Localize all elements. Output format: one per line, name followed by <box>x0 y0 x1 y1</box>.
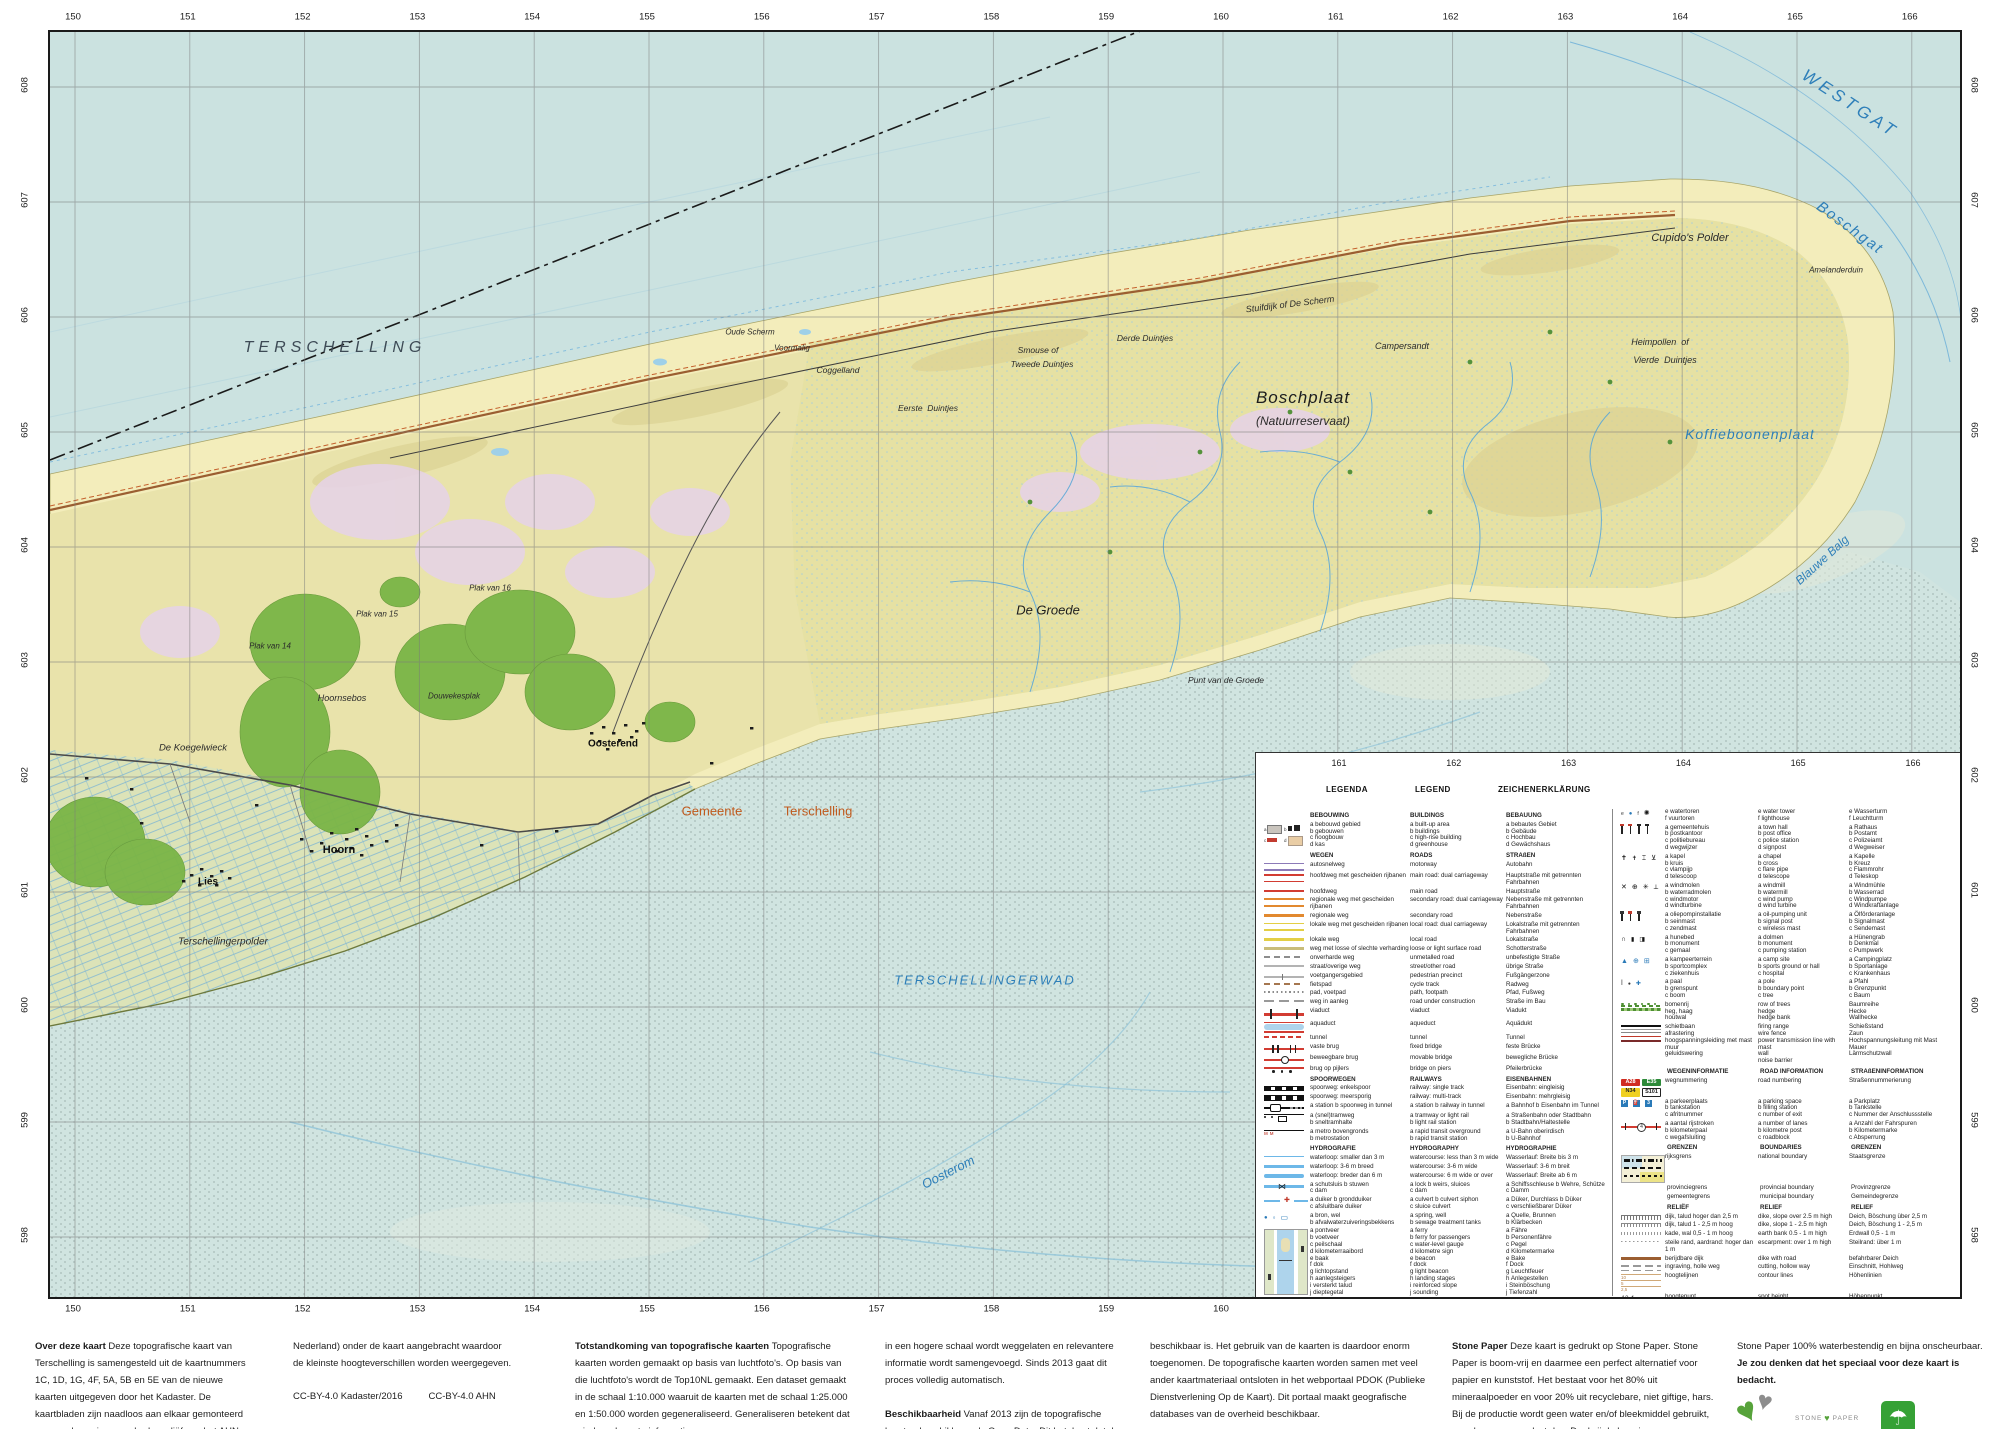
legend-text-en: a spring, well b sewage treatment tanks <box>1410 1213 1506 1227</box>
legend-row: 4a aantal rijstroken b kilometerpaal c w… <box>1621 1121 1957 1141</box>
legend-text-en: secondary road: dual carriageway <box>1410 897 1506 904</box>
legend-text-nl: a parkeerplaats b tankstation c afritnum… <box>1665 1099 1758 1119</box>
axis-top-label: 151 <box>180 12 196 23</box>
legend-text-nl: e watertoren f vuurtoren <box>1665 809 1758 823</box>
legend-symbol-rel4 <box>1621 1240 1665 1242</box>
legend-text-de: Pfeilerbrücke <box>1506 1066 1612 1073</box>
legend-text-nl: berijdbare dijk <box>1665 1256 1758 1263</box>
legend-row: ǀ●✚a paal b grenspunt c booma pole b bou… <box>1621 979 1957 999</box>
footer-paragraph: Stone Paper Deze kaart is gedrukt op Sto… <box>1452 1338 1714 1429</box>
legend-row: bomenrij heg, haag houtwalrow of trees h… <box>1621 1002 1957 1022</box>
legend-row: hoofdweg met gescheiden rijbanenmain roa… <box>1264 873 1612 887</box>
legend-text-en: local road <box>1410 937 1506 944</box>
footer-paragraph: Beschikbaarheid Vanaf 2013 zijn de topog… <box>885 1406 1131 1429</box>
legend-text-nl: regionale weg met gescheiden rijbanen <box>1310 897 1410 911</box>
legend-text-de: Autobahn <box>1506 862 1612 869</box>
legend-symbol-roadnum: A28E35N34S101 <box>1621 1078 1665 1097</box>
legend-text-de: e Wasserturm f Leuchtturm <box>1849 809 1957 823</box>
legend-row: waterloop: 3-6 m breedwatercourse: 3-6 m… <box>1264 1164 1612 1171</box>
axis-left-label: 608 <box>20 77 31 93</box>
legend-row: steile rand, aardrand: hoger dan 1 mesca… <box>1621 1240 1957 1254</box>
legend-symbol-dolmen: ∩▮◨ <box>1621 935 1665 944</box>
legend-text-de: Hauptstraße mit getrennten Fahrbahnen <box>1506 873 1612 887</box>
legend-symbol-wl1 <box>1264 1155 1310 1157</box>
legend-text-en: row of trees hedge hedge bank <box>1758 1002 1849 1022</box>
legend-text-nl: waterloop: smaller dan 3 m <box>1310 1155 1410 1162</box>
legend-row: beweegbare brugmovable bridgebewegliche … <box>1264 1055 1612 1064</box>
legend-symbol-spring: ●◦▭ <box>1264 1213 1310 1222</box>
legend-row: spoorweg: enkelspoorrailway: single trac… <box>1264 1085 1612 1092</box>
axis-bottom-label: 154 <box>524 1304 540 1315</box>
legend-text-de: Wasserlauf: 3-6 m breit <box>1506 1164 1612 1171</box>
legend-text-nl: a duiker b grondduiker c afsluitbare dui… <box>1310 1197 1410 1211</box>
legend-text-de: Nebenstraße mit getrennten Fahrbahnen <box>1506 897 1612 911</box>
axis-top-label: 163 <box>1557 12 1573 23</box>
legend-section-en: RELIEF <box>1760 1205 1851 1212</box>
legend-text-nl: a windmolen b waterradmolen c windmotor … <box>1665 883 1758 910</box>
legend-text-nl: pad, voetpad <box>1310 990 1410 997</box>
axis-bottom-label: 153 <box>409 1304 425 1315</box>
legend-text-en: firing range wire fence power transmissi… <box>1758 1024 1849 1065</box>
footer-column: beschikbaar is. Het gebruik van de kaart… <box>1150 1338 1442 1423</box>
legend-row: weg met losse of slechte verhardingloose… <box>1264 946 1612 953</box>
footer-column: Stone Paper 100% waterbestendig en bijna… <box>1737 1338 1987 1429</box>
legend-symbol-fences <box>1621 1024 1665 1042</box>
legend-row: regionale wegsecondary roadNebenstraße <box>1264 913 1612 920</box>
legend-text-en: cutting, hollow way <box>1758 1264 1849 1271</box>
legend-text-de: Erdwall 0,5 - 1 m <box>1849 1231 1957 1238</box>
legend-header-nl: LEGENDA <box>1326 785 1368 794</box>
legend-text-en: secondary road <box>1410 913 1506 920</box>
legend-text-de: Höhenpunkt <box>1849 1294 1957 1298</box>
legend-symbol-rdash <box>1264 982 1310 985</box>
legend-text-en: a oil-pumping unit b signal post c wirel… <box>1758 912 1849 932</box>
legend-text-de: übrige Straße <box>1506 964 1612 971</box>
axis-bottom-label: 158 <box>983 1304 999 1315</box>
footer-logos: ♥♥STONE♥PAPER☂ <box>1737 1397 1987 1429</box>
legend-section-de: HYDROGRAPHIE <box>1506 1146 1612 1153</box>
map-sheet: WESTGATBoschgatTERSCHELLINGKoffieboonenp… <box>0 0 2000 1429</box>
legend-row: straat/overige wegstreet/other roadübrig… <box>1264 964 1612 971</box>
legend-text-nl: gemeentegrens <box>1667 1194 1760 1201</box>
legend-row: A28E35N34S101wegnummeringroad numberingS… <box>1621 1078 1957 1097</box>
legend-row: onverharde wegunmetalled roadunbefestigt… <box>1264 955 1612 962</box>
axis-right-label: 608 <box>1969 77 1980 93</box>
legend-text-de: Deich, Böschung 1 - 2,5 m <box>1849 1222 1957 1229</box>
legend-text-en: a camp site b sports ground or hall c ho… <box>1758 957 1849 977</box>
axis-right-label: 605 <box>1969 422 1980 438</box>
legend-text-en: viaduct <box>1410 1008 1506 1015</box>
legend-text-nl: brug op pijlers <box>1310 1066 1410 1073</box>
axis-right-label: 603 <box>1969 652 1980 668</box>
legend-text-en: earth bank 0.5 - 1 m high <box>1758 1231 1849 1238</box>
legend-symbol-wl2 <box>1264 1164 1310 1168</box>
legend-text-nl: wegnummering <box>1665 1078 1758 1085</box>
axis-top-label: 154 <box>524 12 540 23</box>
legend-text-de: Tunnel <box>1506 1035 1612 1042</box>
stone-paper-wordmark: STONE♥PAPER <box>1795 1410 1859 1427</box>
legend-row: ✝✝⌶⊻a kapel b kruis c vlampijp d telesco… <box>1621 854 1957 881</box>
legend-row: ∩▮◨a hunebed b monument c gemaala dolmen… <box>1621 935 1957 955</box>
legend-text-nl: a (snel)tramweg b sneltramhalte <box>1310 1113 1410 1127</box>
legend-symbol-wtow: e●f✺ <box>1621 809 1665 818</box>
legend-text-nl: fietspad <box>1310 982 1410 989</box>
legend-section-en: RAILWAYS <box>1410 1077 1506 1084</box>
legend-row: 1052,5hoogtelijnencontour linesHöhenlini… <box>1621 1273 1957 1292</box>
legend-text-de: Provinzgrenze <box>1851 1185 1957 1192</box>
legend-text-de: a Anzahl der Fahrspuren b Kilometermarke… <box>1849 1121 1957 1141</box>
legend-row: 12,4hoogtepuntspot heightHöhenpunkt <box>1621 1294 1957 1298</box>
legend-text-en: cycle track <box>1410 982 1506 989</box>
footer-paragraph: in een hogere schaal wordt weggelaten en… <box>885 1338 1131 1389</box>
legend-text-nl: spoorweg: meersporig <box>1310 1094 1410 1101</box>
legend-text-de: Gemeindegrenze <box>1851 1194 1957 1201</box>
axis-legend-top-label: 166 <box>1905 758 1920 768</box>
legend-row: waterloop: breder dan 6 mwatercourse: 6 … <box>1264 1173 1612 1180</box>
legend-text-de: Radweg <box>1506 982 1612 989</box>
legend-text-de: a Fähre b Personenfähre c Pegel d Kilome… <box>1506 1228 1612 1296</box>
legend-symbol-rel6 <box>1621 1264 1665 1271</box>
legend-text-en: a windmill b watermill c wind pump d win… <box>1758 883 1849 910</box>
legend-text-nl: lokale weg met gescheiden rijbanen <box>1310 922 1410 929</box>
legend-symbol-rd2 <box>1264 862 1310 871</box>
legend-symbol-rd <box>1264 946 1310 950</box>
footer-paragraph: beschikbaar is. Het gebruik van de kaart… <box>1150 1338 1442 1423</box>
legend-row: dijk, talud 1 - 2,5 m hoogdike, slope 1 … <box>1621 1222 1957 1229</box>
legend-text-de: Aquädukt <box>1506 1021 1612 1028</box>
legend-text-nl: a hunebed b monument c gemaal <box>1665 935 1758 955</box>
legend-section-nl: HYDROGRAFIE <box>1310 1146 1410 1153</box>
legend-text-nl: a bron, wel b afvalwaterzuiveringsbekken… <box>1310 1213 1410 1227</box>
footer-column: Nederland) onder de kaart aangebracht wa… <box>293 1338 513 1405</box>
axis-legend-top-label: 161 <box>1331 758 1346 768</box>
legend-symbol-aqua <box>1264 1021 1310 1033</box>
legend-text-en: a rapid transit overground b rapid trans… <box>1410 1129 1506 1143</box>
axis-top-label: 150 <box>65 12 81 23</box>
legend-text-de: a Ölförderanlage b Signalmast c Sendemas… <box>1849 912 1957 932</box>
axis-right-label: 598 <box>1969 1227 1980 1243</box>
legend-text-en: motorway <box>1410 862 1506 869</box>
legend-section-header: SPOORWEGENRAILWAYSEISENBAHNEN <box>1264 1077 1612 1084</box>
legend-row: autosnelwegmotorwayAutobahn <box>1264 862 1612 871</box>
legend-text-de: Schießstand Zaun Hochspannungsleitung mi… <box>1849 1024 1957 1058</box>
legend-row: berijdbare dijkdike with roadbefahrbarer… <box>1621 1256 1957 1263</box>
legend-text-en: provincial boundary <box>1760 1185 1851 1192</box>
axis-legend-top-label: 164 <box>1676 758 1691 768</box>
legend-text-en: spot height <box>1758 1294 1849 1298</box>
legend-text-nl: hoogtepunt <box>1665 1294 1758 1298</box>
legend-row: a oliepompinstallatie b seinmast c zendm… <box>1621 912 1957 932</box>
legend-text-en: a town hall b post office c police stati… <box>1758 825 1849 852</box>
legend-text-nl: rijksgrens <box>1665 1154 1758 1161</box>
footer-paragraph: Je zou denken dat het speciaal voor deze… <box>1737 1355 1987 1389</box>
axis-left-label: 607 <box>20 192 31 208</box>
legend-section-de: STRAßEN <box>1506 853 1612 860</box>
legend-text-de: a U-Bahn oberirdisch b U-Bahnhof <box>1506 1129 1612 1143</box>
legend-text-en: a ferry b ferry for passengers c water-l… <box>1410 1228 1506 1296</box>
legend-symbol-rd <box>1264 937 1310 941</box>
legend-text-en: road under construction <box>1410 999 1506 1006</box>
map-frame: WESTGATBoschgatTERSCHELLINGKoffieboonenp… <box>48 30 1962 1299</box>
legend-row: waterloop: smaller dan 3 mwatercourse: l… <box>1264 1155 1612 1162</box>
legend-symbol-bbrug <box>1264 1055 1310 1064</box>
legend-section-en: ROADS <box>1410 853 1506 860</box>
legend-text-en: a built-up area b buildings c high-rise … <box>1410 822 1506 849</box>
axis-right-label: 606 <box>1969 307 1980 323</box>
legend-row: kade, wal 0,5 - 1 m hoogearth bank 0.5 -… <box>1621 1231 1957 1238</box>
legend-text-nl: lokale weg <box>1310 937 1410 944</box>
legend-text-en: pedestrian precinct <box>1410 973 1506 980</box>
legend-symbol-culv: ✚ <box>1264 1197 1310 1204</box>
legend-section-header: BEBOUWINGBUILDINGSBEBAUUNG <box>1264 813 1612 820</box>
legend-row: lokale weglocal roadLokalstraße <box>1264 937 1612 944</box>
legend-symbol-rdash <box>1264 955 1310 958</box>
footer-column: Over deze kaart Deze topografische kaart… <box>35 1338 253 1429</box>
legend-section-de: EISENBAHNEN <box>1506 1077 1612 1084</box>
legend-symbol-contour: 1052,5 <box>1621 1273 1665 1292</box>
legend-text-en: a chapel b cross c flare pipe d telescop… <box>1758 854 1849 881</box>
legend-row: voetgangersgebiedpedestrian precinctFußg… <box>1264 973 1612 980</box>
legend-text-nl: provinciegrens <box>1667 1185 1760 1192</box>
legend-symbol-rel3 <box>1621 1231 1665 1235</box>
legend-symbol-park: P⛽3 <box>1621 1099 1665 1107</box>
legend-symbol-rd <box>1264 913 1310 917</box>
legend-text-de: Eisenbahn: eingleisig <box>1506 1085 1612 1092</box>
axis-top-label: 155 <box>639 12 655 23</box>
axis-top-label: 152 <box>295 12 311 23</box>
legend-row: weg in aanlegroad under constructionStra… <box>1264 999 1612 1006</box>
legend-symbol-oil <box>1621 912 1665 921</box>
legend-section-header: WEGENINFORMATIEROAD INFORMATIONSTRAßENIN… <box>1621 1069 1957 1076</box>
legend-text-de: a Bahnhof b Eisenbahn im Tunnel <box>1506 1103 1612 1110</box>
legend-text-nl: a station b spoorweg in tunnel <box>1310 1103 1410 1110</box>
legend-text-de: a Kapelle b Kreuz c Flammrohr d Teleskop <box>1849 854 1957 881</box>
legend-symbol-tun <box>1264 1035 1310 1038</box>
legend-text-en: aqueduct <box>1410 1021 1506 1028</box>
legend-text-en: e water tower f lighthouse <box>1758 809 1849 823</box>
legend-text-en: loose or light surface road <box>1410 946 1506 953</box>
legend-section-header: HYDROGRAFIEHYDROGRAPHYHYDROGRAPHIE <box>1264 1146 1612 1153</box>
legend-text-en: watercourse: 3-6 m wide <box>1410 1164 1506 1171</box>
legend-text-nl: a kampeerterrein b sportcomplex c zieken… <box>1665 957 1758 977</box>
legend-symbol-bnd <box>1621 1154 1665 1183</box>
legend-text-nl: viaduct <box>1310 1008 1410 1015</box>
license-attribution: CC-BY-4.0 AHN <box>429 1388 496 1405</box>
legend-row: provinciegrensprovincial boundaryProvinz… <box>1621 1185 1957 1192</box>
legend-row: ●◦▭a bron, wel b afvalwaterzuiveringsbek… <box>1264 1213 1612 1227</box>
axis-right-label: 607 <box>1969 192 1980 208</box>
legend-text-en: watercourse: 6 m wide or over <box>1410 1173 1506 1180</box>
axis-right-label: 604 <box>1969 537 1980 553</box>
legend-symbol-tram <box>1264 1113 1310 1122</box>
legend-right-group: e●f✺e watertoren f vuurtorene water towe… <box>1612 809 1957 1296</box>
legend-text-nl: schietbaan afrastering hoogspanningsleid… <box>1665 1024 1758 1058</box>
legend-text-en: a number of lanes b kilometre post c roa… <box>1758 1121 1849 1141</box>
legend-text-nl: straat/overige weg <box>1310 964 1410 971</box>
legend-text-en: movable bridge <box>1410 1055 1506 1062</box>
legend-text-de: feste Brücke <box>1506 1044 1612 1051</box>
legend-text-nl: aquaduct <box>1310 1021 1410 1028</box>
axis-bottom-label: 152 <box>295 1304 311 1315</box>
axis-left-label: 598 <box>20 1227 31 1243</box>
legend-text-en: street/other road <box>1410 964 1506 971</box>
legend-section-nl: BEBOUWING <box>1310 813 1410 820</box>
legend-text-nl: a oliepompinstallatie b seinmast c zendm… <box>1665 912 1758 932</box>
legend-text-de: Fußgängerzone <box>1506 973 1612 980</box>
legend-symbol-metro: ᴍᴍ <box>1264 1129 1310 1137</box>
legend-row: fietspadcycle trackRadweg <box>1264 982 1612 989</box>
legend-text-nl: a gemeentehuis b postkantoor c politiebu… <box>1665 825 1758 852</box>
legend-symbol-rd <box>1264 964 1310 968</box>
legend-text-de: Lokalstraße mit getrennten Fahrbahnen <box>1506 922 1612 936</box>
legend-header-en: LEGEND <box>1415 785 1451 794</box>
axis-top-label: 164 <box>1672 12 1688 23</box>
axis-top-label: 165 <box>1787 12 1803 23</box>
axis-top-label: 166 <box>1902 12 1918 23</box>
axis-right-label: 600 <box>1969 997 1980 1013</box>
legend-text-de: Wasserlauf: Breite ab 6 m <box>1506 1173 1612 1180</box>
axis-left-label: 603 <box>20 652 31 668</box>
legend-text-nl: vaste brug <box>1310 1044 1410 1051</box>
legend-left-group: BEBOUWINGBUILDINGSBEBAUUNGabcda bebouwd … <box>1264 809 1612 1296</box>
legend-section-en: HYDROGRAPHY <box>1410 1146 1506 1153</box>
legend-section-de: RELIEF <box>1851 1205 1957 1212</box>
legend-text-en: local road: dual carriageway <box>1410 922 1506 929</box>
legend-text-de: Straßennummerierung <box>1849 1078 1957 1085</box>
legend-text-en: tunnel <box>1410 1035 1506 1042</box>
axis-top-label: 153 <box>409 12 425 23</box>
legend-text-nl: weg met losse of slechte verharding <box>1310 946 1410 953</box>
axis-top-label: 156 <box>754 12 770 23</box>
legend-text-de: Viadukt <box>1506 1008 1612 1015</box>
legend-text-en: road numbering <box>1758 1078 1849 1085</box>
legend-text-de: Schotterstraße <box>1506 946 1612 953</box>
legend-text-en: escarpment: over 1 m high <box>1758 1240 1849 1247</box>
legend-section-nl: SPOORWEGEN <box>1310 1077 1410 1084</box>
legend-symbol-chapel: ✝✝⌶⊻ <box>1621 854 1665 863</box>
legend-text-en: bridge on piers <box>1410 1066 1506 1073</box>
footer-paragraph: Totstandkoming van topografische kaarten… <box>575 1338 855 1429</box>
axis-right-label: 601 <box>1969 882 1980 898</box>
footer-paragraph: Stone Paper 100% waterbestendig en bijna… <box>1737 1338 1987 1355</box>
axis-top-label: 160 <box>1213 12 1229 23</box>
axis-legend-top-label: 162 <box>1446 758 1461 768</box>
legend-row: ✕⊕✳⟂a windmolen b waterradmolen c windmo… <box>1621 883 1957 910</box>
legend-row: tunneltunnelTunnel <box>1264 1035 1612 1042</box>
axis-legend-top-label: 165 <box>1791 758 1806 768</box>
legend-columns: BEBOUWINGBUILDINGSBEBAUUNGabcda bebouwd … <box>1264 809 1957 1296</box>
legend-text-nl: a schutsluis b stuwen c dam <box>1310 1182 1410 1196</box>
legend-row: ᴍᴍa metro bovengronds b metrostationa ra… <box>1264 1129 1612 1143</box>
legend-text-nl: kade, wal 0,5 - 1 m hoog <box>1665 1231 1758 1238</box>
license-attribution: CC-BY-4.0 Kadaster/2016 <box>293 1388 403 1405</box>
legend-row: ingraving, holle wegcutting, hollow wayE… <box>1621 1264 1957 1271</box>
legend-symbol-rd2 <box>1264 922 1310 931</box>
axis-bottom-label: 156 <box>754 1304 770 1315</box>
legend-row: ⋈a schutsluis b stuwen c dama lock b wei… <box>1264 1182 1612 1196</box>
legend-row: rijksgrensnational boundaryStaatsgrenze <box>1621 1154 1957 1183</box>
legend-text-de: a Parkplatz b Tankstelle c Nummer der An… <box>1849 1099 1957 1119</box>
legend-text-en: a parking space b filling station c numb… <box>1758 1099 1849 1119</box>
legend-text-nl: a paal b grenspunt c boom <box>1665 979 1758 999</box>
legend-text-nl: hoofdweg <box>1310 889 1410 896</box>
stone-paper-heart-icon: ♥♥ <box>1737 1397 1789 1429</box>
legend-text-nl: onverharde weg <box>1310 955 1410 962</box>
legend-header-de: ZEICHENERKLÄRUNG <box>1498 785 1591 794</box>
legend-row: aquaductaqueductAquädukt <box>1264 1021 1612 1033</box>
legend-text-nl: a pontveer b voetveer c peilschaal d kil… <box>1310 1228 1410 1296</box>
axis-left-label: 599 <box>20 1112 31 1128</box>
legend-symbol-rtick <box>1264 973 1310 980</box>
legend-text-en: a tramway or light rail b light rail sta… <box>1410 1113 1506 1127</box>
legend-text-de: a Quelle, Brunnen b Klärbecken <box>1506 1213 1612 1227</box>
legend-row: P⛽3a parkeerplaats b tankstation c afrit… <box>1621 1099 1957 1119</box>
legend-row: ▲⊕⊞a kampeerterrein b sportcomplex c zie… <box>1621 957 1957 977</box>
legend-row: hoofdwegmain roadHauptstraße <box>1264 889 1612 896</box>
legend-text-de: Baumreihe Hecke Wallhecke <box>1849 1002 1957 1022</box>
legend-row: lokale weg met gescheiden rijbanenlocal … <box>1264 922 1612 936</box>
legend-row: e●f✺e watertoren f vuurtorene water towe… <box>1621 809 1957 823</box>
legend-symbol-vbrug <box>1264 1044 1310 1053</box>
legend-symbol-rail2 <box>1264 1094 1310 1101</box>
legend-text-de: Straße im Bau <box>1506 999 1612 1006</box>
legend-text-de: unbefestigte Straße <box>1506 955 1612 962</box>
legend-text-nl: waterloop: breder dan 6 m <box>1310 1173 1410 1180</box>
legend-row: a station b spoorweg in tunnela station … <box>1264 1103 1612 1111</box>
legend-symbol-rel5 <box>1621 1256 1665 1260</box>
legend-text-nl: bomenrij heg, haag houtwal <box>1665 1002 1758 1022</box>
axis-left-label: 601 <box>20 882 31 898</box>
legend-text-en: a station b railway in tunnel <box>1410 1103 1506 1110</box>
legend-text-nl: hoofdweg met gescheiden rijbanen <box>1310 873 1410 880</box>
legend-row: a pontveer b voetveer c peilschaal d kil… <box>1264 1228 1612 1296</box>
legend-section-de: GRENZEN <box>1851 1145 1957 1152</box>
axis-top-label: 158 <box>983 12 999 23</box>
legend-panel: 161162163164165166 LEGENDA LEGEND ZEICHE… <box>1255 752 1961 1298</box>
legend-text-de: Staatsgrenze <box>1849 1154 1957 1161</box>
legend-section-header: RELIËFRELIEFRELIEF <box>1621 1205 1957 1212</box>
legend-text-de: a Düker, Durchlass b Düker c verschließb… <box>1506 1197 1612 1211</box>
legend-row: vaste brugfixed bridgefeste Brücke <box>1264 1044 1612 1053</box>
legend-symbol-rail1 <box>1264 1085 1310 1091</box>
legend-text-en: railway: multi-track <box>1410 1094 1506 1101</box>
legend-section-header: WEGENROADSSTRAßEN <box>1264 853 1612 860</box>
legend-symbol-wl3 <box>1264 1173 1310 1179</box>
legend-row: a gemeentehuis b postkantoor c politiebu… <box>1621 825 1957 852</box>
legend-symbol-pbrug <box>1264 1066 1310 1073</box>
legend-text-en: railway: single track <box>1410 1085 1506 1092</box>
legend-text-nl: a metro bovengronds b metrostation <box>1310 1129 1410 1143</box>
legend-section-nl: WEGEN <box>1310 853 1410 860</box>
legend-text-de: a Hünengrab b Denkmal c Pumpwerk <box>1849 935 1957 955</box>
axis-bottom-label: 150 <box>65 1304 81 1315</box>
legend-symbol-blds: abcd <box>1264 822 1310 847</box>
legend-row: brug op pijlersbridge on piersPfeilerbrü… <box>1264 1066 1612 1073</box>
axis-top-label: 161 <box>1328 12 1344 23</box>
legend-section-nl: WEGENINFORMATIE <box>1667 1069 1760 1076</box>
axis-right-label: 599 <box>1969 1112 1980 1128</box>
legend-text-de: a Rathaus b Postamt c Polizeiamt d Wegwe… <box>1849 825 1957 852</box>
legend-text-nl: tunnel <box>1310 1035 1410 1042</box>
legend-symbol-mill: ✕⊕✳⟂ <box>1621 883 1665 892</box>
legend-text-de: Nebenstraße <box>1506 913 1612 920</box>
legend-text-de: Höhenlinien <box>1849 1273 1957 1280</box>
legend-text-nl: a kapel b kruis c vlampijp d telescoop <box>1665 854 1758 881</box>
legend-text-de: befahrbarer Deich <box>1849 1256 1957 1263</box>
legend-text-en: a culvert b culvert siphon c sluice culv… <box>1410 1197 1506 1211</box>
footer-column: Totstandkoming van topografische kaarten… <box>575 1338 855 1429</box>
legend-row: ✚a duiker b grondduiker c afsluitbare du… <box>1264 1197 1612 1211</box>
